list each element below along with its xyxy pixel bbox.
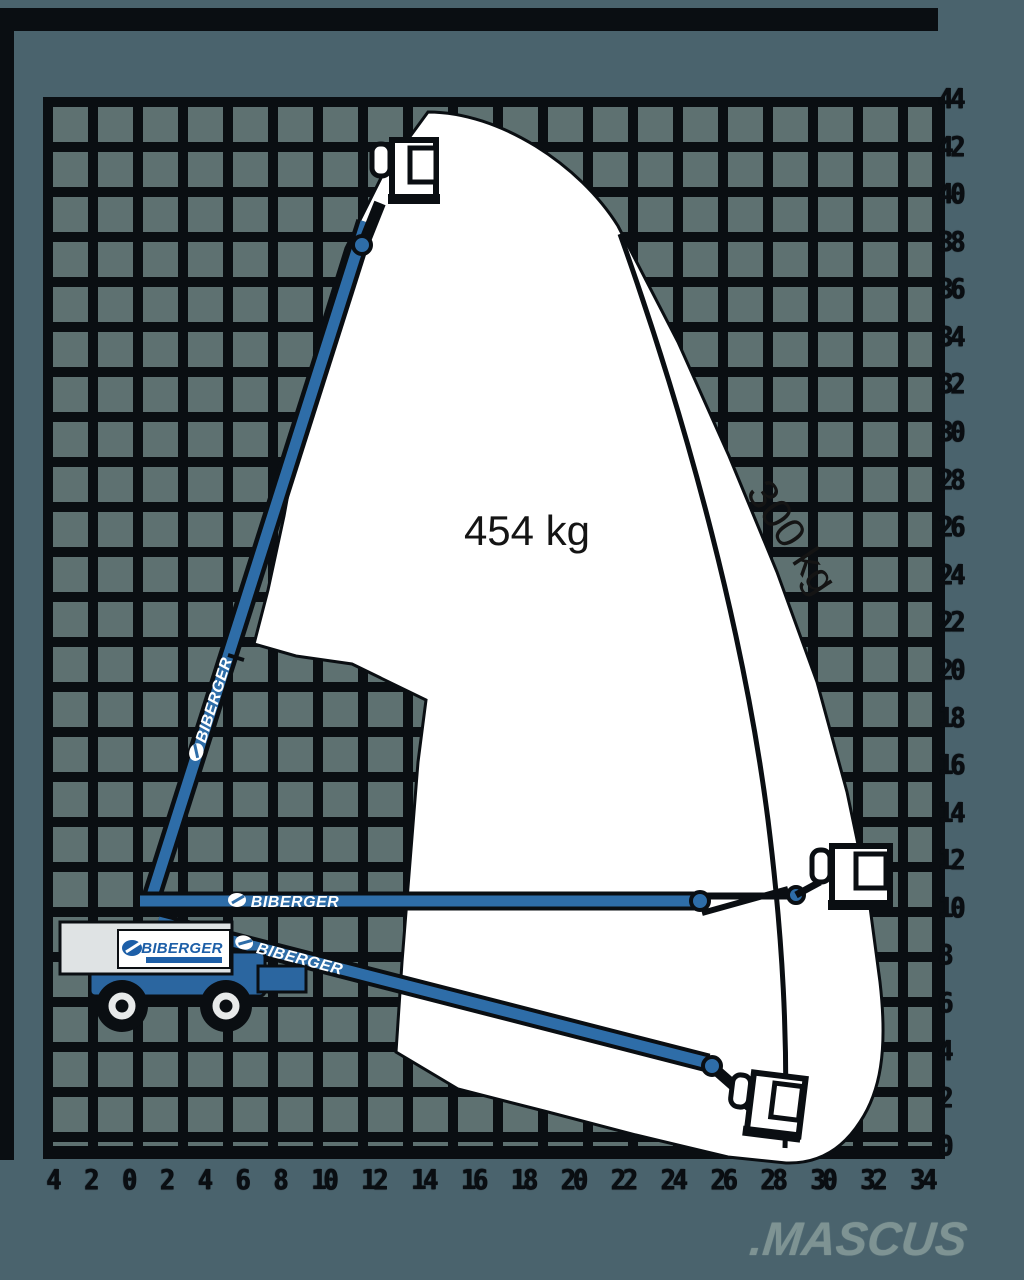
axis-tick: 12 — [361, 1165, 385, 1193]
axis-tick: 16 — [938, 751, 998, 779]
axis-tick: 28 — [938, 465, 998, 493]
svg-text:BIBERGER: BIBERGER — [251, 894, 339, 911]
axis-tick: 0 — [122, 1165, 134, 1193]
axis-tick: 30 — [938, 418, 998, 446]
wheel-left — [96, 980, 148, 1032]
axis-tick: 28 — [760, 1165, 784, 1193]
reach-diagram: 454 kg 300 kg — [0, 0, 1024, 1280]
axis-tick: 26 — [938, 513, 998, 541]
axis-tick: 16 — [461, 1165, 485, 1193]
axis-tick: 4 — [197, 1165, 209, 1193]
axis-tick: 8 — [938, 941, 998, 969]
axis-tick: 10 — [311, 1165, 335, 1193]
envelope-drawing: 454 kg 300 kg — [0, 0, 1024, 1280]
axis-tick: 22 — [938, 608, 998, 636]
capacity-label-inner: 454 kg — [464, 507, 590, 554]
machine-base: BIBERGER — [60, 922, 306, 1032]
axis-tick: 18 — [938, 703, 998, 731]
axis-tick: 30 — [810, 1165, 834, 1193]
axis-tick: 0 — [938, 1131, 998, 1159]
axis-tick: 2 — [160, 1165, 172, 1193]
axis-tick: 44 — [938, 85, 998, 113]
axis-tick: 12 — [938, 846, 998, 874]
axis-tick: 2 — [938, 1084, 998, 1112]
wheel-right — [200, 980, 252, 1032]
axis-tick: 22 — [610, 1165, 634, 1193]
axis-tick: 24 — [660, 1165, 684, 1193]
axis-tick: 2 — [84, 1165, 96, 1193]
axis-tick: 18 — [511, 1165, 535, 1193]
axis-tick: 20 — [938, 655, 998, 683]
brand-panel: BIBERGER — [118, 930, 230, 968]
axis-tick: 24 — [938, 560, 998, 588]
axis-tick: 8 — [273, 1165, 285, 1193]
axis-tick: 34 — [938, 322, 998, 350]
axis-tick: 42 — [938, 132, 998, 160]
axis-tick: 10 — [938, 893, 998, 921]
axis-tick: 40 — [938, 180, 998, 208]
axis-tick: 32 — [860, 1165, 884, 1193]
vertical-axis-scale: 4442403836343230282624222018161412108642… — [938, 86, 998, 1158]
axis-tick: 20 — [561, 1165, 585, 1193]
axis-tick: 6 — [235, 1165, 247, 1193]
mascus-watermark: .MASCUS — [747, 1210, 1024, 1268]
axis-tick: 34 — [910, 1165, 934, 1193]
brand-logo-raised-boom: BIBERGER — [187, 655, 236, 763]
axis-tick: 6 — [938, 988, 998, 1016]
axis-tick: 14 — [411, 1165, 435, 1193]
axis-tick: 14 — [938, 798, 998, 826]
axis-tick: 26 — [710, 1165, 734, 1193]
horizontal-axis-scale: 420246810121416182022242628303234 — [46, 1160, 934, 1198]
axis-tick: 32 — [938, 370, 998, 398]
axis-tick: 38 — [938, 227, 998, 255]
axis-tick: 4 — [46, 1165, 58, 1193]
brand-logo-panel: BIBERGER — [141, 940, 223, 957]
axis-tick: 4 — [938, 1036, 998, 1064]
axis-tick: 36 — [938, 275, 998, 303]
